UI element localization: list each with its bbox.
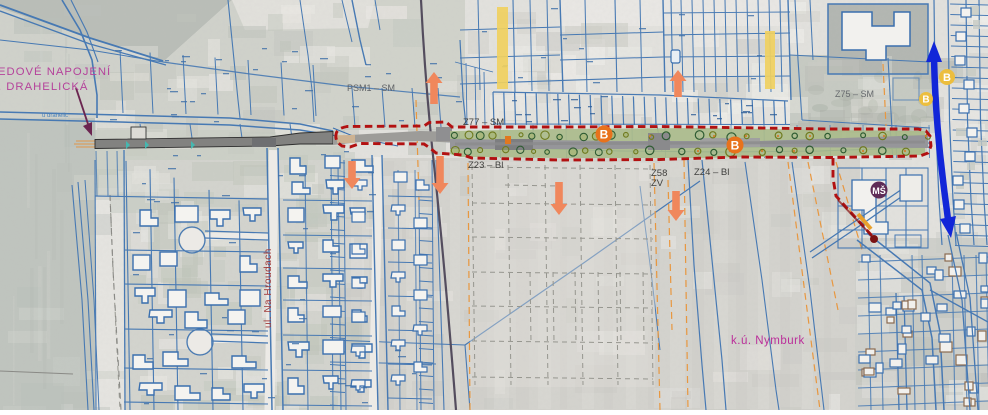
svg-text:B: B bbox=[922, 95, 929, 106]
svg-text:ZV: ZV bbox=[651, 178, 664, 189]
svg-text:B: B bbox=[943, 72, 951, 84]
svg-text:PSM1 – SM: PSM1 – SM bbox=[347, 83, 395, 93]
svg-text:. DRAHELICKÁ: . DRAHELICKÁ bbox=[0, 80, 88, 93]
svg-text:EDOVÉ NAPOJENÍ: EDOVÉ NAPOJENÍ bbox=[0, 65, 111, 78]
svg-text:Z23 – Bl: Z23 – Bl bbox=[468, 160, 503, 171]
svg-text:u drahelic: u drahelic bbox=[42, 113, 68, 119]
svg-text:ul. Na Hroudach: ul. Na Hroudach bbox=[263, 248, 274, 328]
svg-text:Z24 – Bl: Z24 – Bl bbox=[694, 167, 729, 178]
svg-text:B: B bbox=[731, 138, 740, 152]
svg-text:Z75 – SM: Z75 – SM bbox=[835, 89, 874, 99]
svg-text:B: B bbox=[600, 127, 609, 141]
svg-text:k.ú. Nymburk: k.ú. Nymburk bbox=[731, 335, 805, 347]
svg-text:Z77 – SM: Z77 – SM bbox=[463, 117, 504, 128]
svg-text:MŠ: MŠ bbox=[872, 185, 886, 196]
